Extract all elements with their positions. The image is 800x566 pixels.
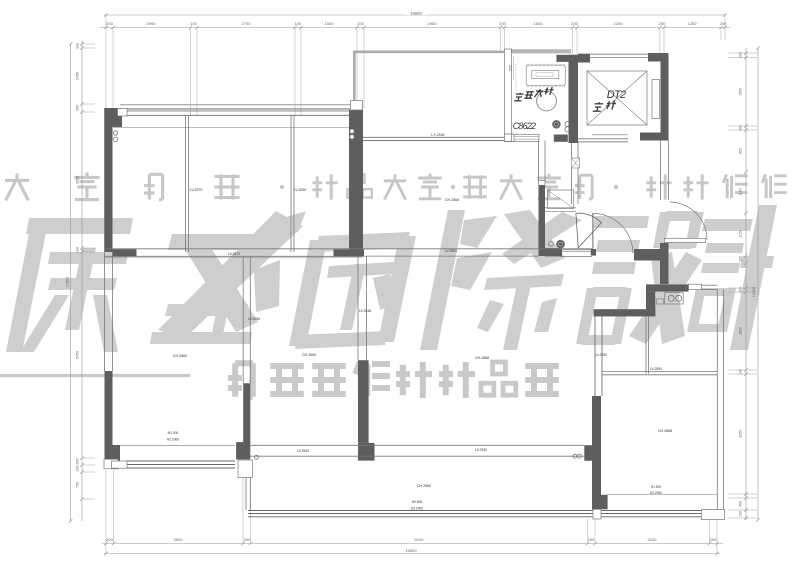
svg-text:LV.2590: LV.2590 bbox=[595, 353, 607, 357]
svg-text:1600: 1600 bbox=[534, 21, 544, 26]
svg-text:200: 200 bbox=[720, 21, 727, 26]
svg-text:3500: 3500 bbox=[174, 537, 184, 542]
svg-text:200: 200 bbox=[739, 256, 743, 262]
svg-text:100: 100 bbox=[190, 21, 197, 26]
svg-text:LV.2530: LV.2530 bbox=[297, 449, 309, 453]
svg-text:200: 200 bbox=[106, 537, 113, 542]
svg-text:CH.2868: CH.2868 bbox=[475, 356, 489, 360]
svg-text:2850: 2850 bbox=[739, 327, 743, 335]
svg-text:LV.2570: LV.2570 bbox=[190, 188, 203, 192]
svg-text:M1.500: M1.500 bbox=[168, 431, 179, 435]
svg-text:200: 200 bbox=[571, 21, 578, 26]
svg-text:LV.2570: LV.2570 bbox=[228, 252, 240, 256]
svg-text:LV.2530: LV.2530 bbox=[475, 448, 487, 452]
svg-text:100: 100 bbox=[739, 511, 743, 517]
svg-text:750: 750 bbox=[76, 482, 80, 488]
svg-text:200: 200 bbox=[710, 537, 717, 542]
svg-text:12500: 12500 bbox=[66, 277, 70, 288]
svg-text:200: 200 bbox=[499, 21, 506, 26]
svg-text:CH.2860: CH.2860 bbox=[302, 353, 316, 357]
svg-text:DT2: DT2 bbox=[607, 89, 626, 101]
svg-text:550: 550 bbox=[509, 65, 513, 71]
svg-text:1450: 1450 bbox=[76, 72, 80, 80]
svg-text:1100: 1100 bbox=[739, 188, 743, 196]
svg-text:1250: 1250 bbox=[688, 21, 698, 26]
svg-text:5450: 5450 bbox=[76, 351, 80, 359]
svg-text:2950: 2950 bbox=[428, 21, 438, 26]
svg-text:100: 100 bbox=[76, 43, 80, 49]
svg-text:200: 200 bbox=[106, 21, 113, 26]
svg-text:1500: 1500 bbox=[325, 21, 335, 26]
svg-text:200: 200 bbox=[76, 466, 80, 472]
svg-text:100: 100 bbox=[357, 21, 364, 26]
svg-text:1150: 1150 bbox=[739, 230, 743, 238]
svg-text:H2.2060: H2.2060 bbox=[167, 438, 179, 442]
svg-text:450: 450 bbox=[739, 501, 743, 507]
svg-text:3250: 3250 bbox=[739, 430, 743, 438]
svg-text:1850: 1850 bbox=[739, 88, 743, 96]
svg-text:C8622: C8622 bbox=[513, 121, 536, 131]
svg-text:200: 200 bbox=[76, 459, 80, 465]
svg-text:100: 100 bbox=[76, 247, 80, 253]
svg-text:200: 200 bbox=[659, 21, 666, 26]
svg-text:850: 850 bbox=[739, 148, 743, 154]
svg-text:200: 200 bbox=[588, 537, 595, 542]
svg-text:16500: 16500 bbox=[405, 548, 417, 553]
svg-text:LV.2558: LV.2558 bbox=[248, 317, 260, 321]
svg-text:3650: 3650 bbox=[76, 176, 80, 184]
svg-text:H0.800: H0.800 bbox=[412, 500, 423, 504]
svg-text:LX.2540: LX.2540 bbox=[431, 133, 444, 137]
svg-text:CH.2860: CH.2860 bbox=[173, 354, 187, 358]
svg-text:2200: 2200 bbox=[614, 21, 624, 26]
svg-text:H1.500: H1.500 bbox=[651, 485, 662, 489]
svg-text:H2.2060: H2.2060 bbox=[650, 491, 662, 495]
svg-text:2090: 2090 bbox=[147, 21, 157, 26]
svg-text:LV.2548: LV.2548 bbox=[359, 309, 371, 313]
svg-text:CH.2868: CH.2868 bbox=[445, 198, 459, 202]
svg-text:LV.2590: LV.2590 bbox=[650, 367, 662, 371]
svg-text:LV.2560: LV.2560 bbox=[445, 249, 457, 253]
svg-text:16500: 16500 bbox=[410, 11, 422, 16]
svg-text:9100: 9100 bbox=[415, 537, 425, 542]
svg-text:2700: 2700 bbox=[242, 21, 252, 26]
svg-text:100: 100 bbox=[295, 21, 302, 26]
svg-text:CH.2868: CH.2868 bbox=[658, 429, 672, 433]
svg-text:LV.2590: LV.2590 bbox=[294, 188, 307, 192]
svg-text:200: 200 bbox=[244, 537, 251, 542]
svg-text:H2.2460: H2.2460 bbox=[411, 507, 423, 511]
svg-text:3100: 3100 bbox=[648, 537, 658, 542]
svg-text:CH.2960: CH.2960 bbox=[417, 484, 431, 488]
svg-text:200: 200 bbox=[76, 105, 80, 111]
